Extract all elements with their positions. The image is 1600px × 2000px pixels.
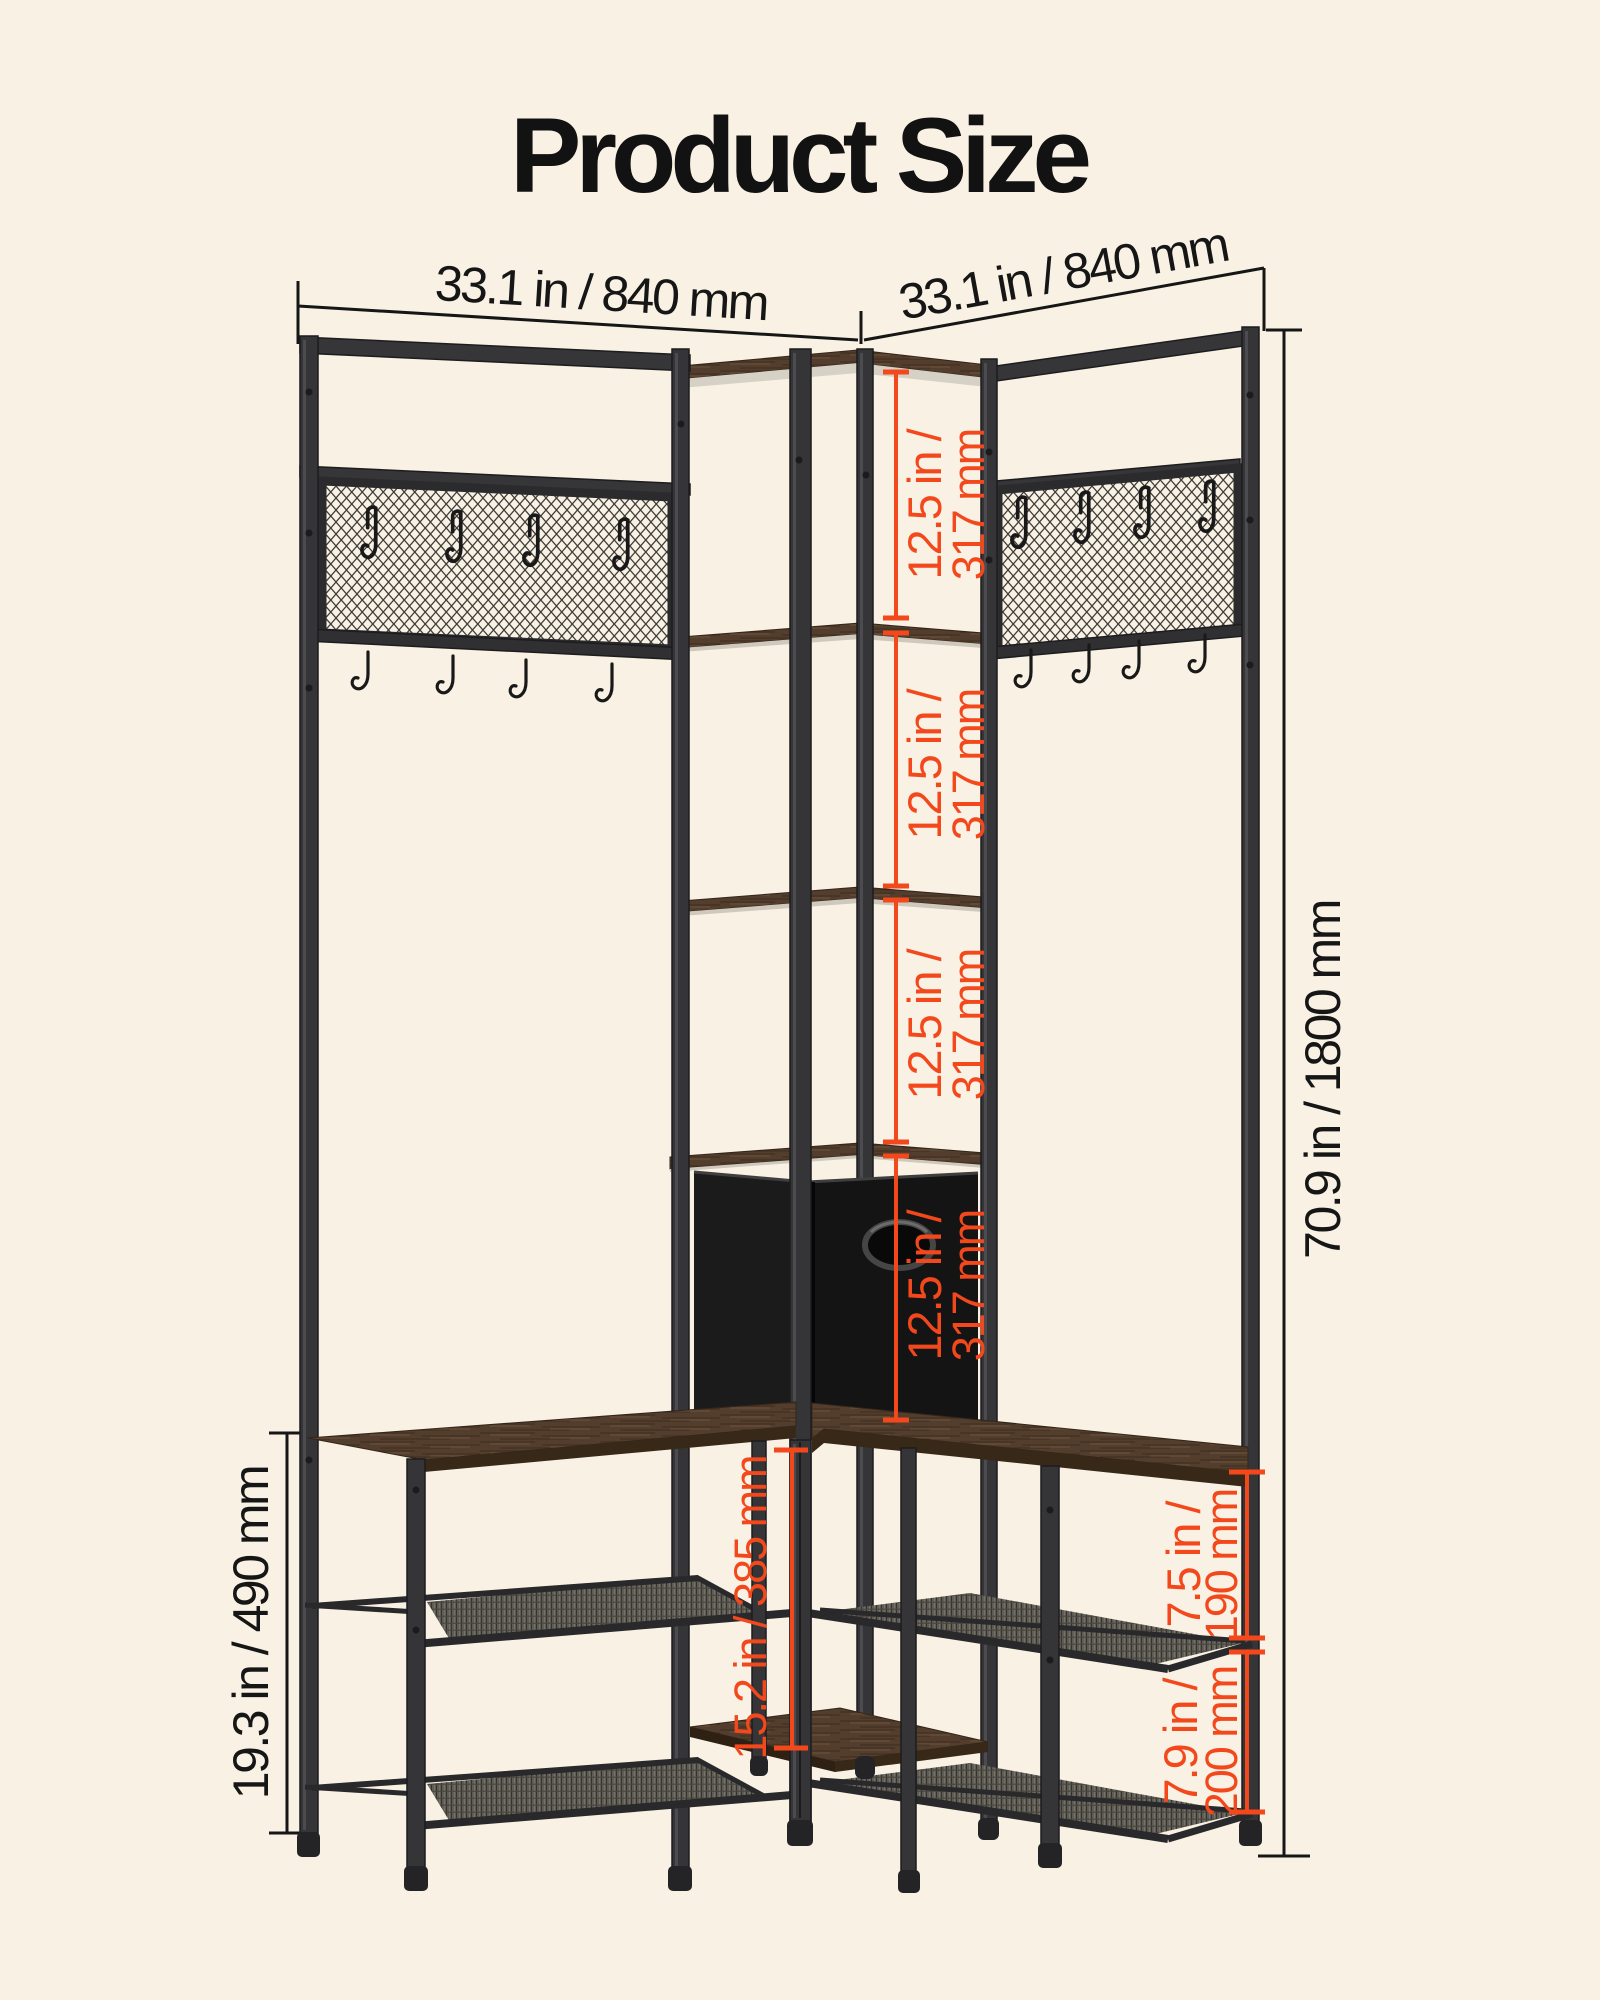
svg-text:190 mm: 190 mm xyxy=(1196,1490,1247,1641)
svg-text:200 mm: 200 mm xyxy=(1196,1667,1247,1818)
svg-text:70.9 in / 1800 mm: 70.9 in / 1800 mm xyxy=(1295,901,1351,1259)
svg-text:317 mm: 317 mm xyxy=(943,690,994,841)
svg-text:317 mm: 317 mm xyxy=(943,430,994,581)
svg-text:317 mm: 317 mm xyxy=(943,1211,994,1362)
svg-text:317 mm: 317 mm xyxy=(943,950,994,1101)
svg-text:19.3 in / 490 mm: 19.3 in / 490 mm xyxy=(223,1467,279,1799)
svg-text:Product Size: Product Size xyxy=(510,95,1089,215)
svg-text:15.2 in / 385 mm: 15.2 in / 385 mm xyxy=(725,1456,776,1759)
